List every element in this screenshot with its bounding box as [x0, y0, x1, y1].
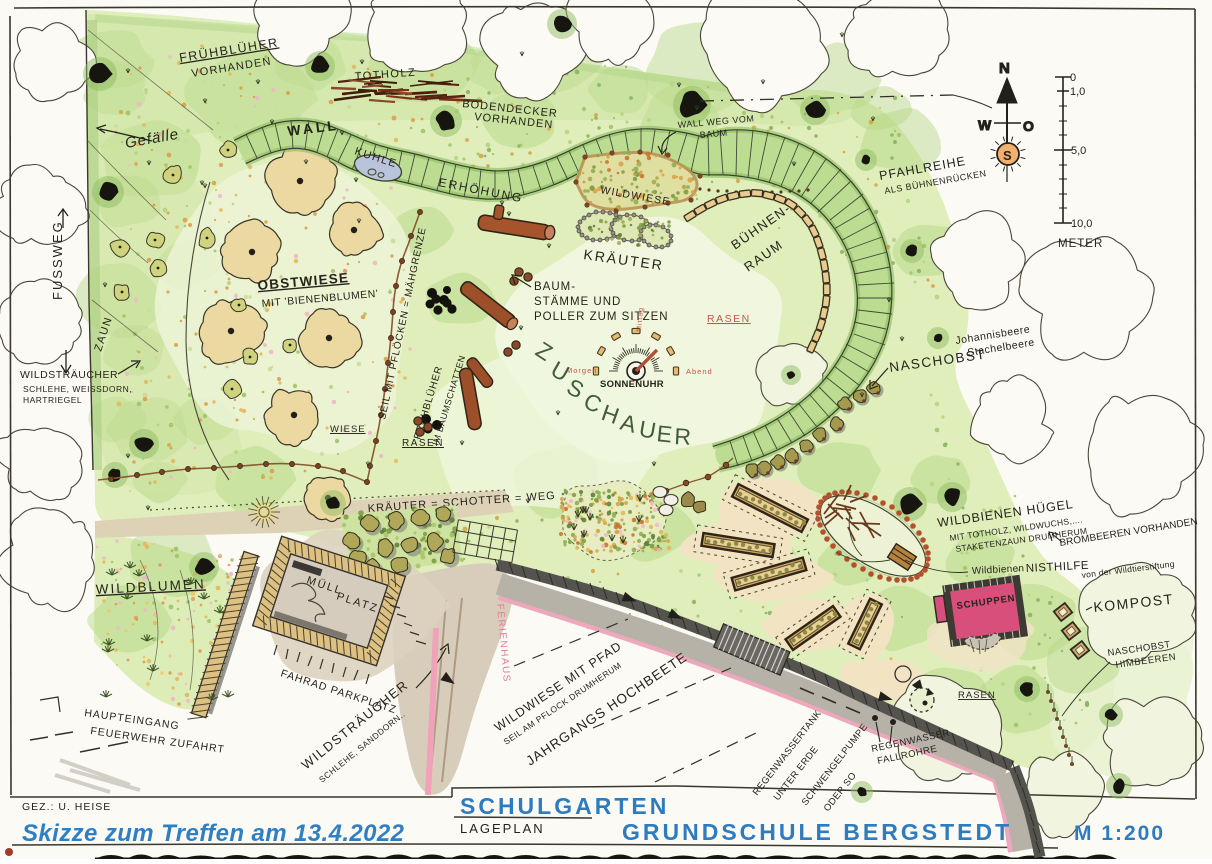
svg-text:WILDSTRÄUCHER: WILDSTRÄUCHER: [20, 369, 118, 381]
svg-text:W: W: [978, 117, 992, 133]
svg-text:LAGEPLAN: LAGEPLAN: [460, 821, 545, 836]
svg-text:WIESE: WIESE: [330, 424, 366, 435]
svg-text:E: E: [655, 420, 673, 447]
svg-text:10,0: 10,0: [1071, 218, 1092, 230]
svg-text:METER: METER: [1058, 238, 1103, 250]
svg-text:POLLER ZUM SITZEN: POLLER ZUM SITZEN: [534, 311, 669, 323]
svg-text:RASEN: RASEN: [707, 313, 751, 325]
svg-text:BAUM-: BAUM-: [534, 281, 576, 293]
svg-text:M 1:200: M 1:200: [1074, 822, 1165, 845]
svg-text:0: 0: [1070, 72, 1076, 84]
svg-text:FUSSWEG: FUSSWEG: [50, 220, 65, 300]
svg-text:S: S: [1003, 148, 1012, 163]
svg-text:O: O: [1023, 118, 1034, 134]
svg-text:SONNENUHR: SONNENUHR: [600, 379, 664, 390]
svg-text:Skizze zum Treffen am 13.4.202: Skizze zum Treffen am 13.4.2022: [22, 820, 405, 847]
svg-text:Abend: Abend: [686, 367, 713, 376]
svg-text:R: R: [674, 423, 692, 450]
svg-text:RASEN: RASEN: [958, 690, 996, 701]
svg-text:GRUNDSCHULE BERGSTEDT: GRUNDSCHULE BERGSTEDT: [622, 819, 1012, 845]
svg-text:GEZ.: U. HEISE: GEZ.: U. HEISE: [22, 801, 111, 813]
svg-text:STÄMME UND: STÄMME UND: [534, 296, 621, 308]
svg-text:HARTRIEGEL: HARTRIEGEL: [23, 395, 82, 405]
svg-text:SCHULGARTEN: SCHULGARTEN: [460, 793, 669, 819]
svg-text:N: N: [999, 60, 1010, 77]
svg-text:1,0: 1,0: [1070, 86, 1085, 98]
svg-text:5,0: 5,0: [1071, 145, 1086, 157]
svg-text:SCHLEHE, WEISSDORN,: SCHLEHE, WEISSDORN,: [23, 384, 132, 394]
